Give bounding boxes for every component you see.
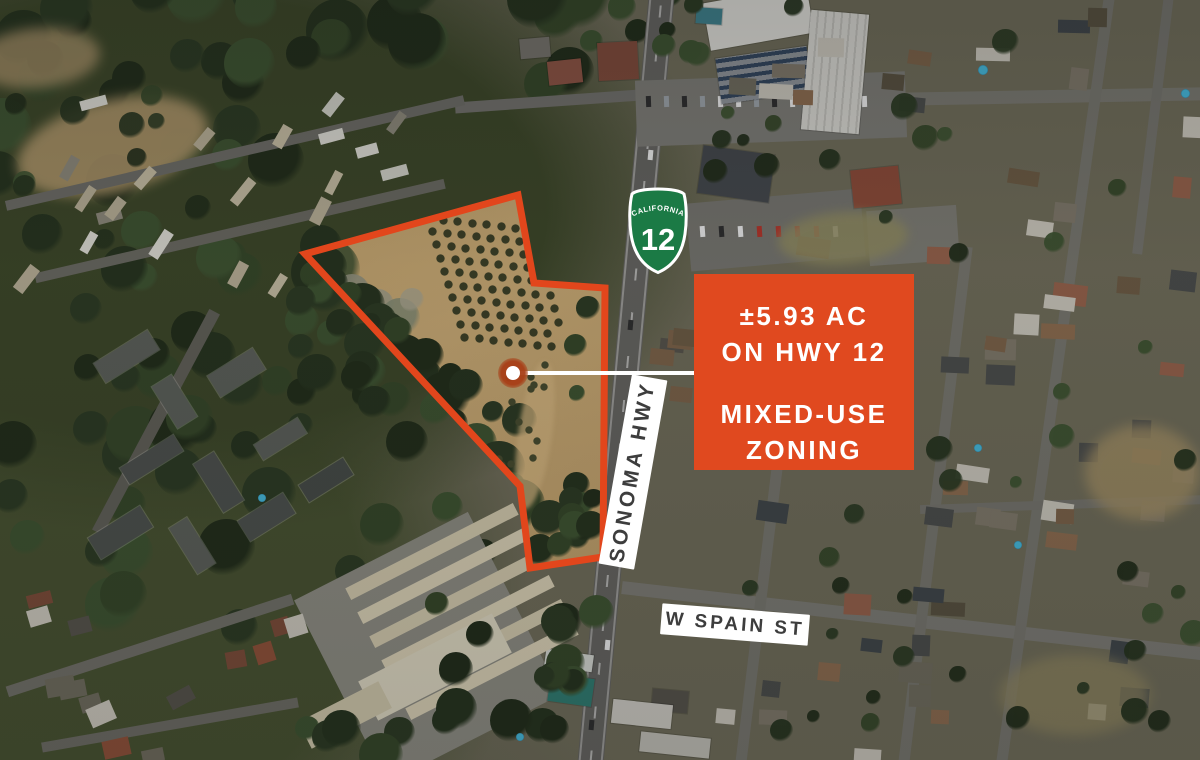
callout-leader-line (513, 371, 694, 375)
aerial-site-map: ±5.93 AC ON HWY 12 MIXED-USE ZONING CALI… (0, 0, 1200, 760)
callout-acreage-line: ±5.93 AC (740, 298, 869, 334)
callout-box: ±5.93 AC ON HWY 12 MIXED-USE ZONING (694, 274, 914, 470)
callout-highway-line: ON HWY 12 (721, 334, 886, 370)
site-marker-dot (506, 366, 520, 380)
satellite-imagery (0, 0, 1200, 760)
w-spain-st-text: W SPAIN ST (665, 608, 806, 641)
callout-zoning-line2: ZONING (746, 432, 862, 468)
highway-12-shield: CALIFORNIA 12 (623, 186, 693, 276)
shield-route-number: 12 (641, 222, 675, 257)
callout-zoning-line1: MIXED-USE (721, 396, 888, 432)
